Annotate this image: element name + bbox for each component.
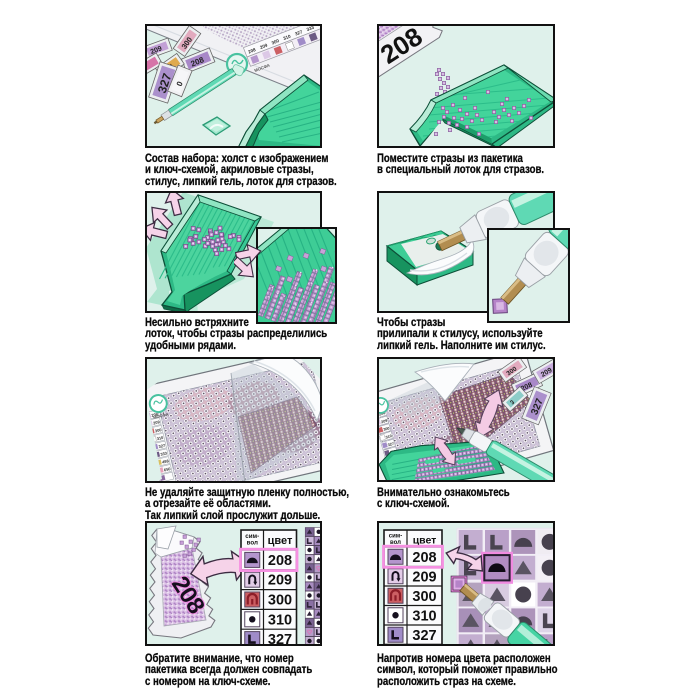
svg-text:300: 300 bbox=[268, 593, 292, 609]
svg-text:209: 209 bbox=[412, 569, 436, 585]
svg-text:вол: вол bbox=[247, 540, 258, 547]
svg-text:310: 310 bbox=[268, 612, 292, 628]
svg-text:327: 327 bbox=[268, 632, 292, 644]
svg-text:сим-: сим- bbox=[389, 534, 402, 540]
svg-text:300: 300 bbox=[412, 589, 436, 605]
svg-text:цвет: цвет bbox=[268, 535, 293, 547]
svg-text:цвет: цвет bbox=[413, 535, 437, 547]
svg-text:208: 208 bbox=[412, 550, 436, 566]
svg-text:327: 327 bbox=[412, 628, 436, 644]
svg-text:208: 208 bbox=[268, 553, 292, 569]
svg-text:310: 310 bbox=[412, 608, 436, 624]
svg-text:209: 209 bbox=[268, 573, 292, 589]
